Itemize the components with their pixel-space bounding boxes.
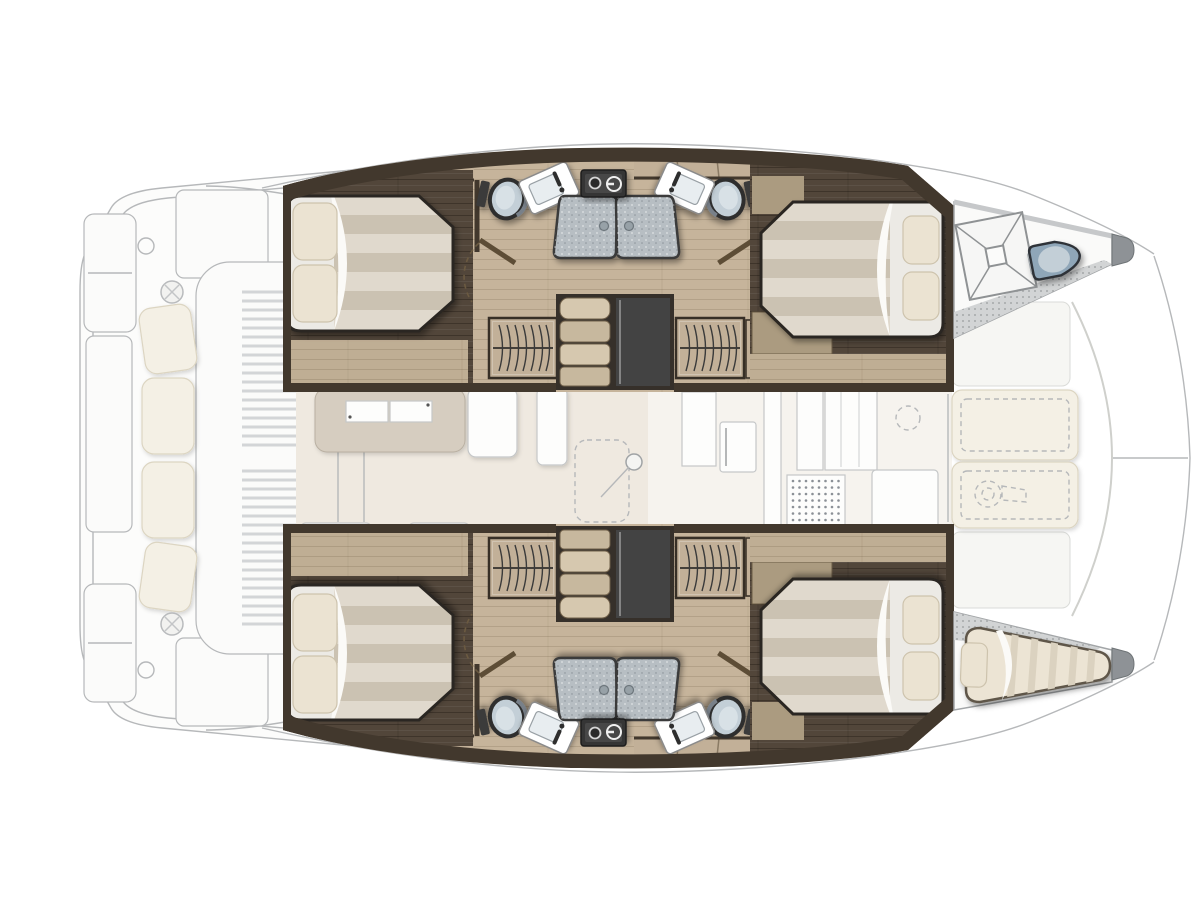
foredeck-panel <box>952 532 1070 608</box>
foredeck-sunpad <box>952 390 1078 460</box>
tender-storage <box>86 336 132 532</box>
catamaran-floorplan-image <box>0 0 1200 900</box>
pillow-icon <box>960 643 988 688</box>
deck-hatch-icon <box>955 212 1036 300</box>
winch-icon <box>161 281 183 303</box>
foredeck-edge <box>1072 302 1112 616</box>
saloon-table <box>315 388 465 452</box>
foredeck-sunpad <box>952 462 1078 528</box>
bow-tip <box>1112 648 1134 680</box>
winch-icon <box>161 613 183 635</box>
bow-tip <box>1112 234 1134 266</box>
starboard-forepeak <box>954 612 1134 710</box>
floorplan-svg <box>0 0 1200 900</box>
saloon-sofa <box>537 388 567 465</box>
saloon-sofa <box>468 388 517 457</box>
